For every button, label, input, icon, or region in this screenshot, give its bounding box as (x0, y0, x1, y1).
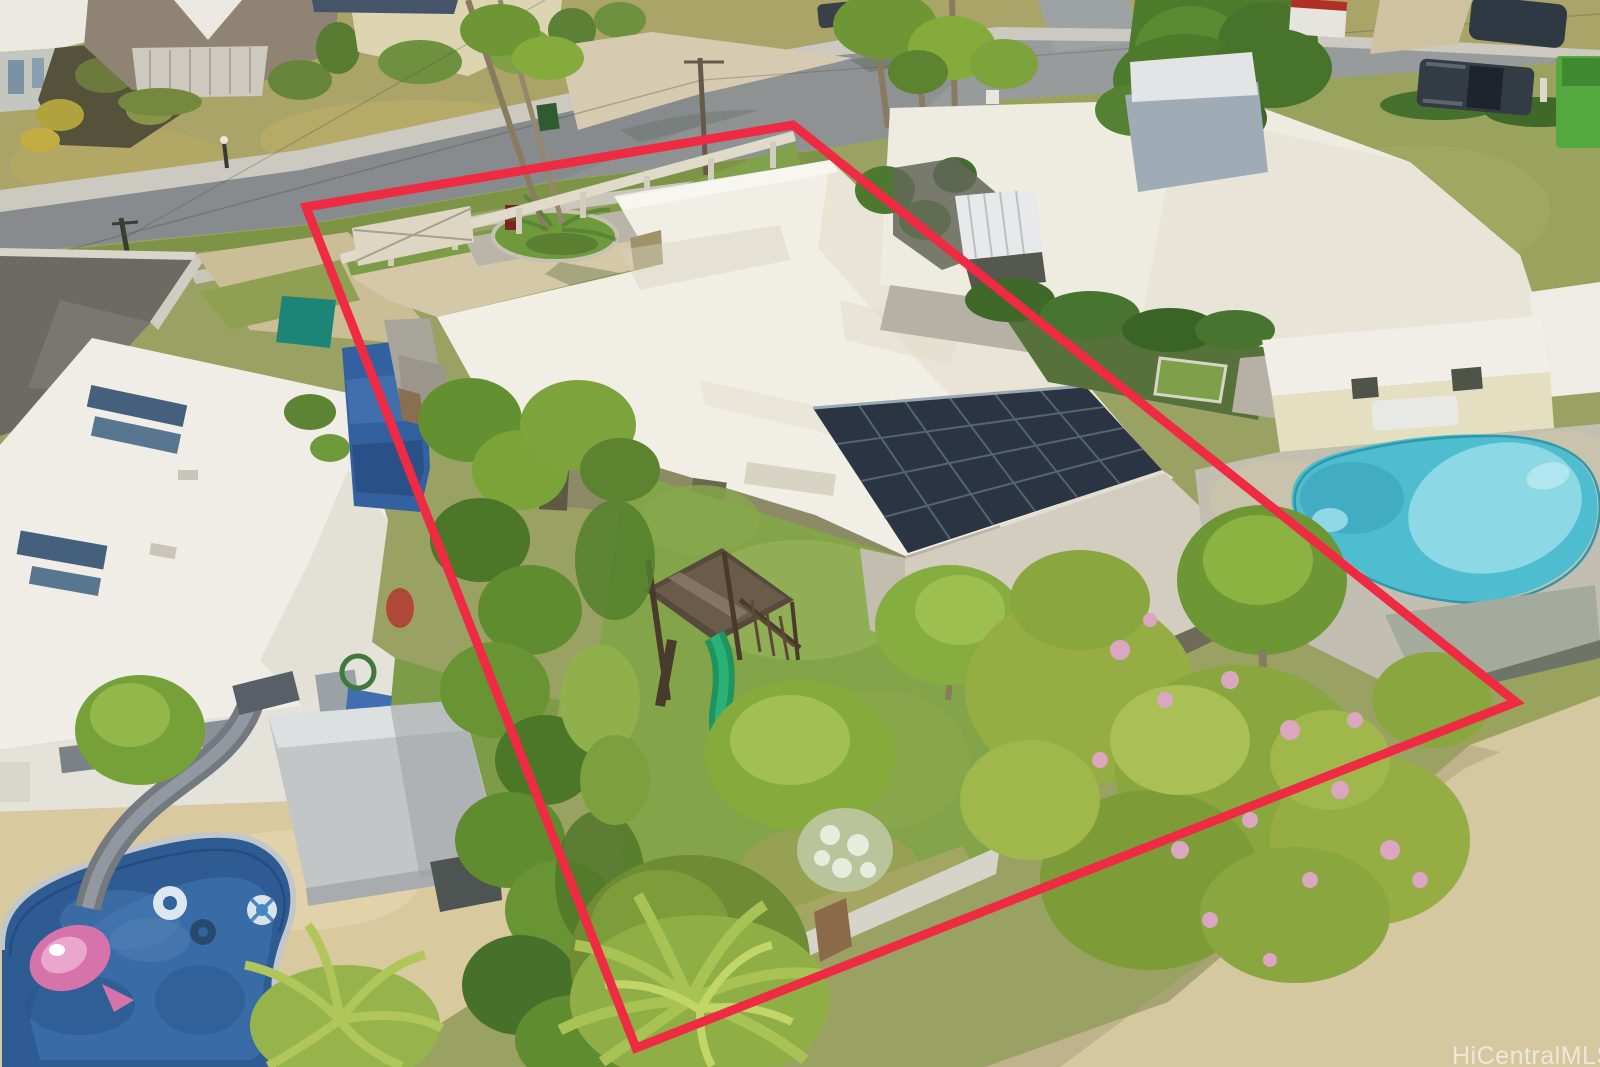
svg-text:HiCentralMLS: HiCentralMLS (1452, 1042, 1600, 1067)
